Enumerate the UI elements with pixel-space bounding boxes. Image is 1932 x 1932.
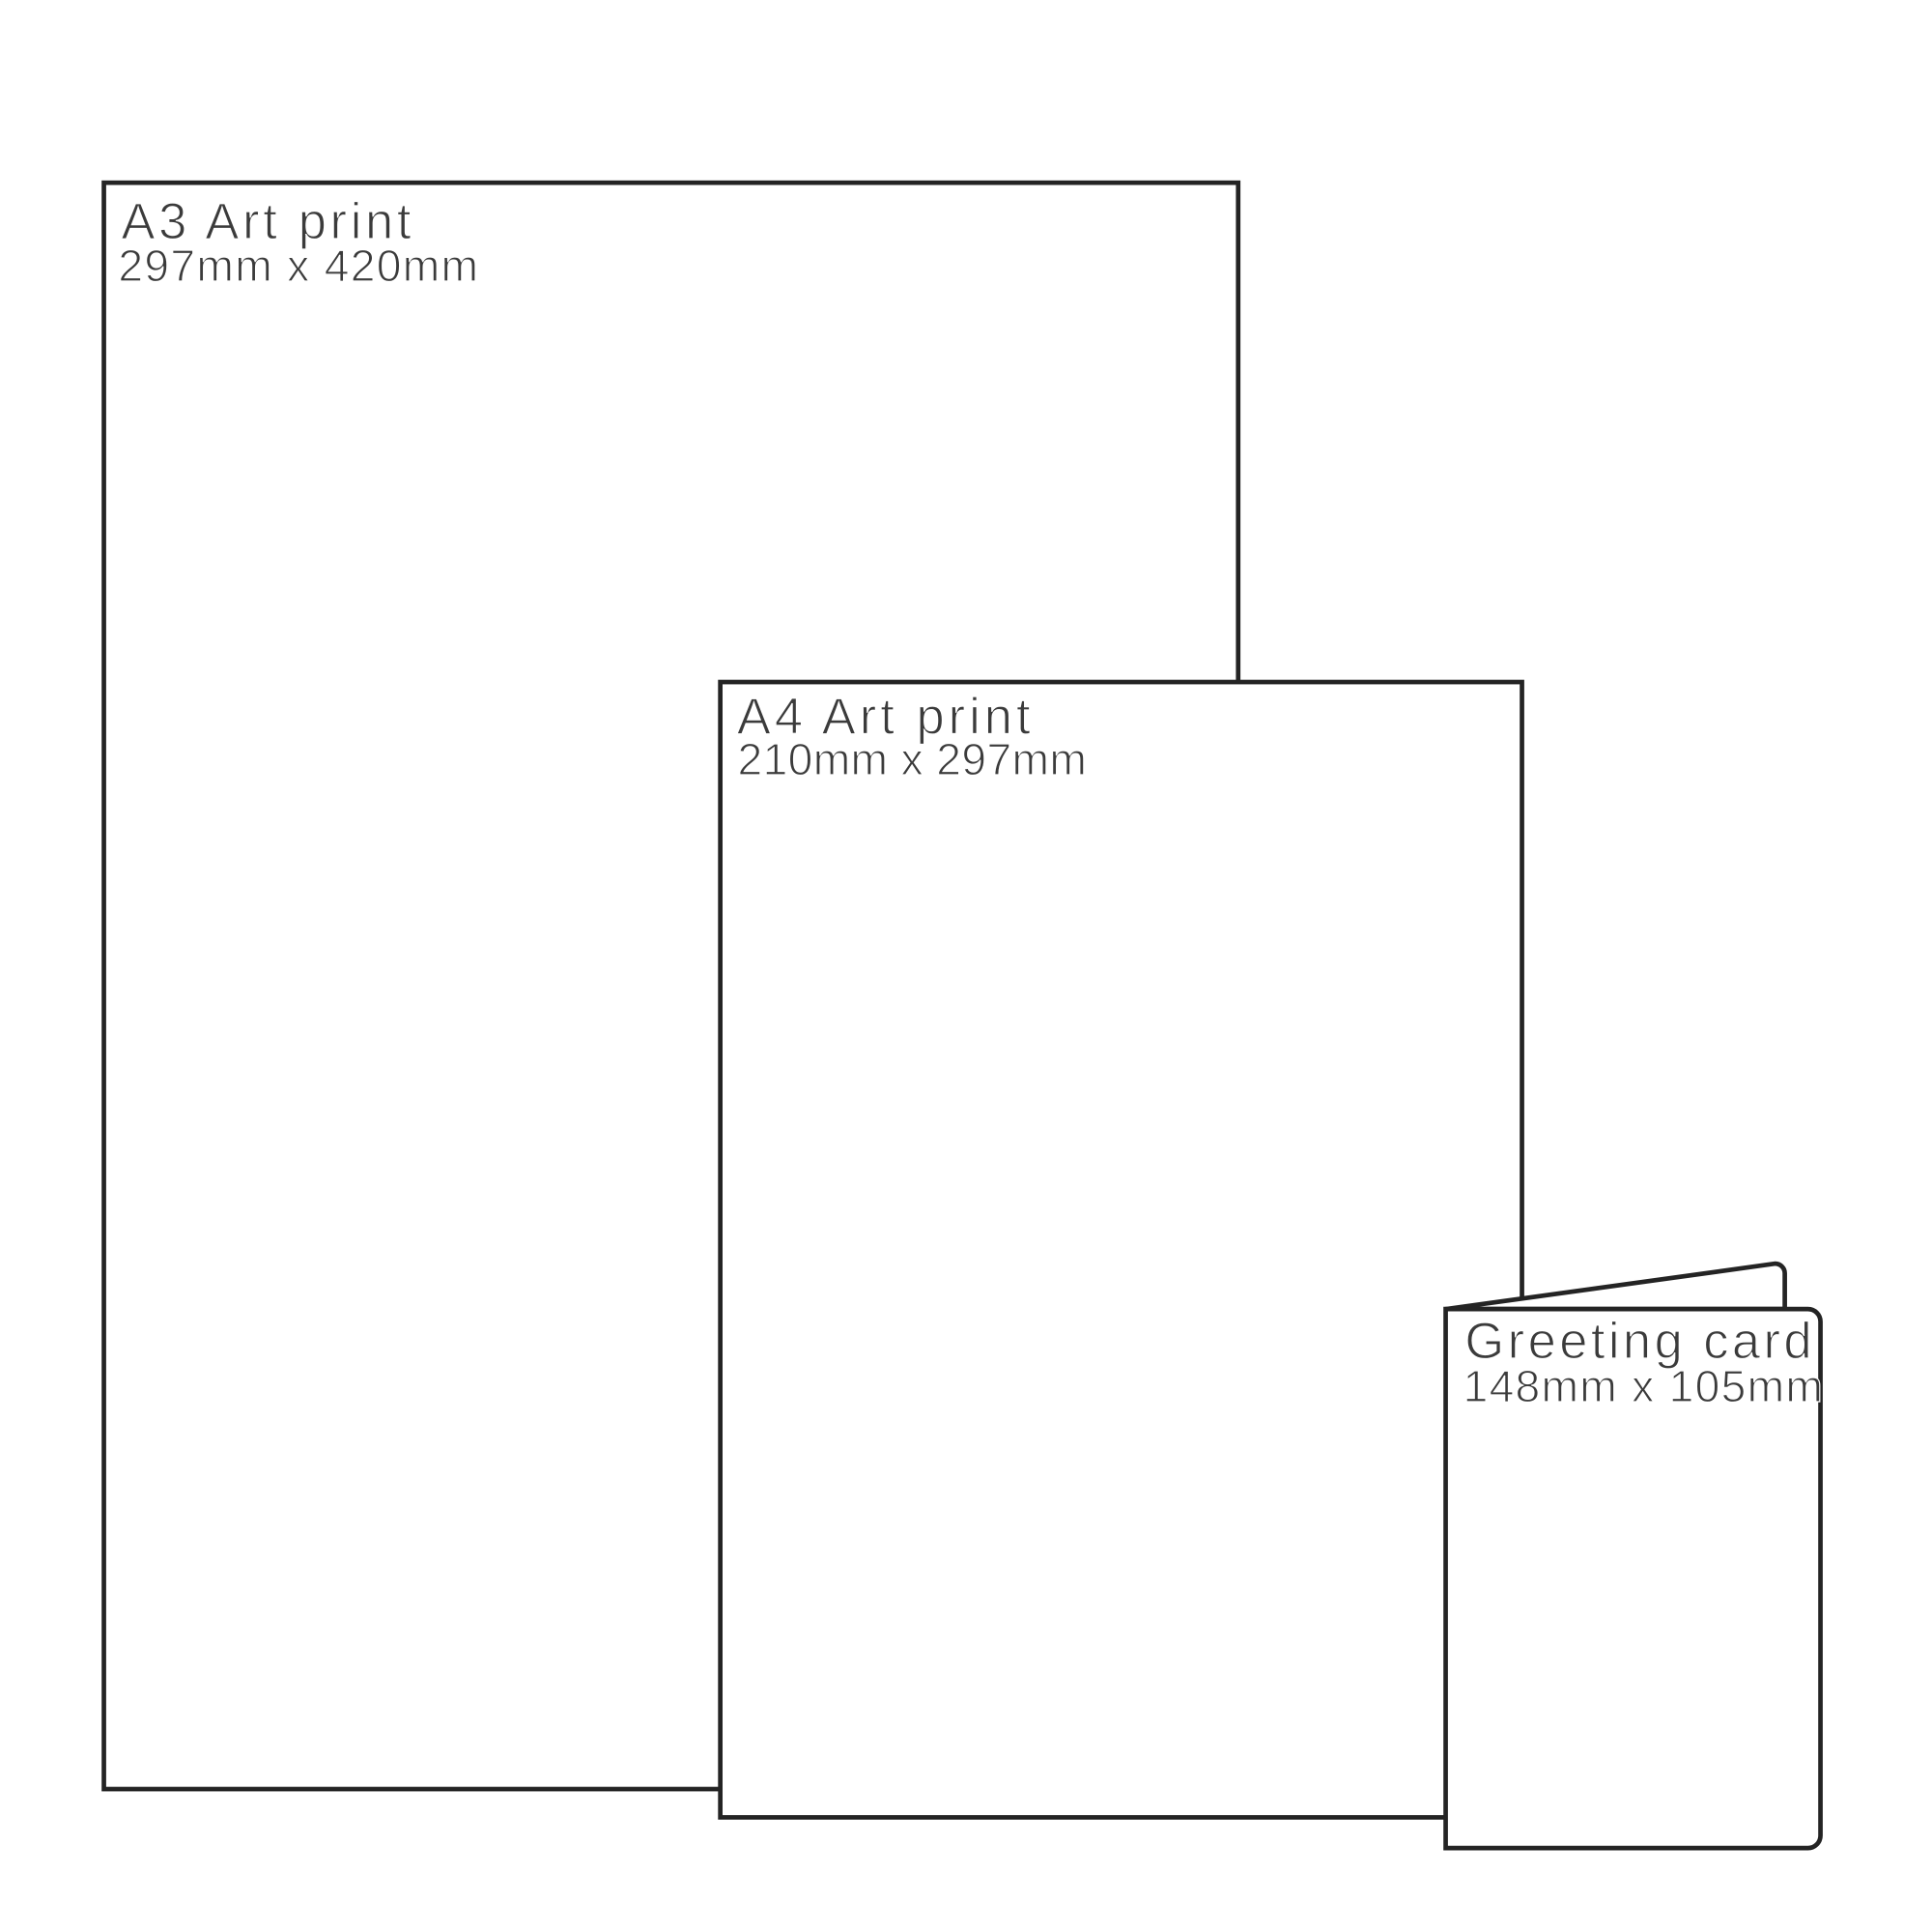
- svg-text:148mm x 105mm: 148mm x 105mm: [1463, 1361, 1825, 1411]
- svg-text:210mm x 297mm: 210mm x 297mm: [738, 734, 1088, 784]
- svg-text:297mm x 420mm: 297mm x 420mm: [118, 241, 479, 291]
